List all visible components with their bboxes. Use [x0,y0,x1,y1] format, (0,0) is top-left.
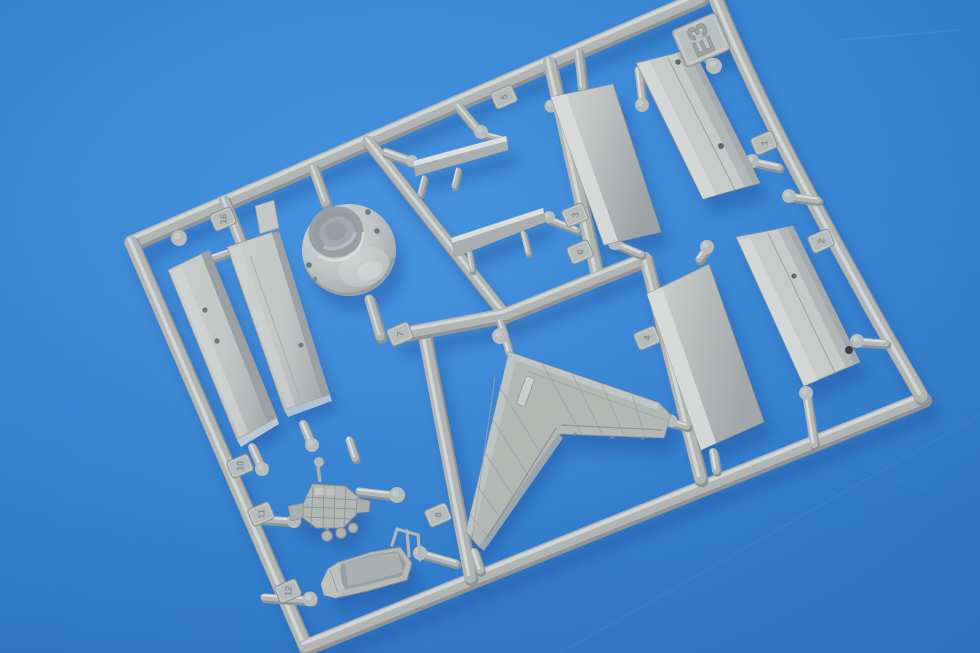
svg-text:7: 7 [395,331,406,336]
svg-text:6: 6 [575,249,586,254]
svg-text:1: 1 [759,140,770,146]
svg-text:4: 4 [642,335,653,341]
svg-text:2: 2 [816,238,827,243]
svg-text:11: 11 [256,508,267,519]
svg-text:3: 3 [570,212,581,217]
svg-text:5: 5 [499,94,510,100]
svg-text:8: 8 [433,512,444,517]
svg-text:12: 12 [283,586,294,597]
svg-text:16: 16 [218,214,229,225]
svg-text:10: 10 [235,461,246,472]
